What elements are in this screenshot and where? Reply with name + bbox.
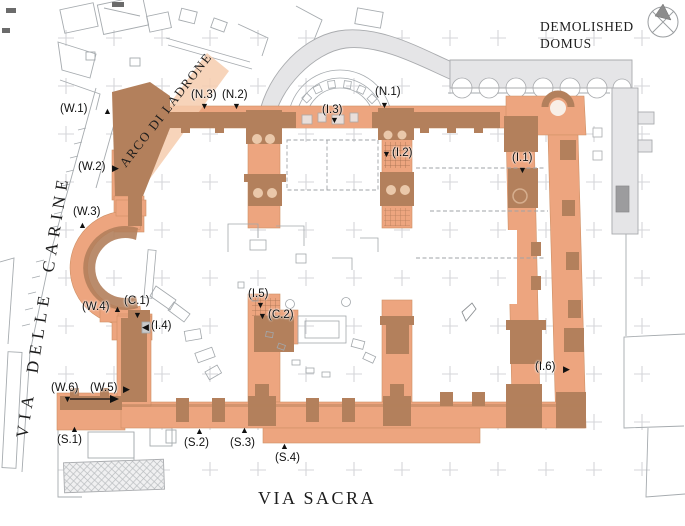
marker-triangle-up-icon: ▲ [78, 221, 87, 230]
marker-label-S.4: (S.4) [275, 452, 300, 465]
street-label-via-sacra: VIA SACRA [258, 488, 376, 509]
marker-triangle-up-icon: ▲ [113, 305, 122, 314]
marker-label-W.2: (W.2) [78, 161, 105, 174]
annotation-demolished-domus-line1: DEMOLISHED [540, 18, 634, 35]
marker-triangle-right-icon: ▶ [123, 385, 130, 394]
marker-label-W.5: (W.5) [90, 382, 117, 395]
hatched-pavement [64, 459, 165, 492]
marker-label-C.2: (C.2) [268, 309, 294, 322]
marker-label-W.3: (W.3) [73, 206, 100, 219]
marker-triangle-left-icon: ◀ [142, 323, 149, 332]
marker-label-S.1: (S.1) [57, 434, 82, 447]
marker-label-W.4: (W.4) [82, 301, 109, 314]
marker-label-I.2: (I.2) [392, 147, 412, 160]
marker-label-N.3: (N.3) [191, 89, 217, 102]
marker-triangle-down-icon: ▼ [382, 150, 391, 159]
marker-label-I.6: (I.6) [535, 361, 555, 374]
wall-notch [506, 230, 517, 304]
marker-triangle-right-icon: ▶ [563, 365, 570, 374]
marker-triangle-up-icon: ▲ [195, 427, 204, 436]
marker-label-W.1: (W.1) [60, 103, 87, 116]
marker-triangle-down-icon: ▼ [256, 301, 265, 310]
marker-triangle-up-icon: ▲ [280, 442, 289, 451]
marker-label-N.2: (N.2) [222, 89, 248, 102]
north-compass-icon [648, 4, 678, 37]
marker-triangle-down-icon: ▼ [232, 102, 241, 111]
annotation-demolished-domus: DEMOLISHED DOMUS [540, 18, 634, 52]
marker-triangle-down-icon: ▼ [518, 166, 527, 175]
marker-label-I.5: (I.5) [248, 288, 268, 301]
marker-label-N.1: (N.1) [375, 86, 401, 99]
marker-label-C.1: (C.1) [124, 295, 150, 308]
marker-label-S.3: (S.3) [230, 437, 255, 450]
marker-label-I.3: (I.3) [322, 104, 342, 117]
marker-triangle-down-icon: ▼ [200, 102, 209, 111]
marker-label-I.4: (I.4) [151, 320, 171, 333]
marker-triangle-down-icon: ▼ [63, 395, 72, 404]
marker-label-W.6: (W.6) [51, 382, 78, 395]
marker-triangle-up-icon: ▲ [240, 426, 249, 435]
marker-triangle-up-icon: ▲ [70, 425, 79, 434]
plan-drawing [0, 0, 685, 526]
marker-triangle-up-icon: ▲ [103, 107, 112, 116]
marker-triangle-right-icon: ▶ [112, 164, 119, 173]
annotation-demolished-domus-line2: DOMUS [540, 35, 634, 52]
marker-triangle-down-icon: ▼ [380, 101, 389, 110]
marker-triangle-down-icon: ▼ [133, 311, 142, 320]
marker-label-S.2: (S.2) [184, 437, 209, 450]
site-plan: VIA SACRA VIA DELLE CARINE ARCO DI LADRO… [0, 0, 685, 526]
marker-triangle-down-icon: ▼ [330, 116, 339, 125]
marker-label-I.1: (I.1) [512, 152, 532, 165]
marker-triangle-down-icon: ▼ [258, 312, 267, 321]
